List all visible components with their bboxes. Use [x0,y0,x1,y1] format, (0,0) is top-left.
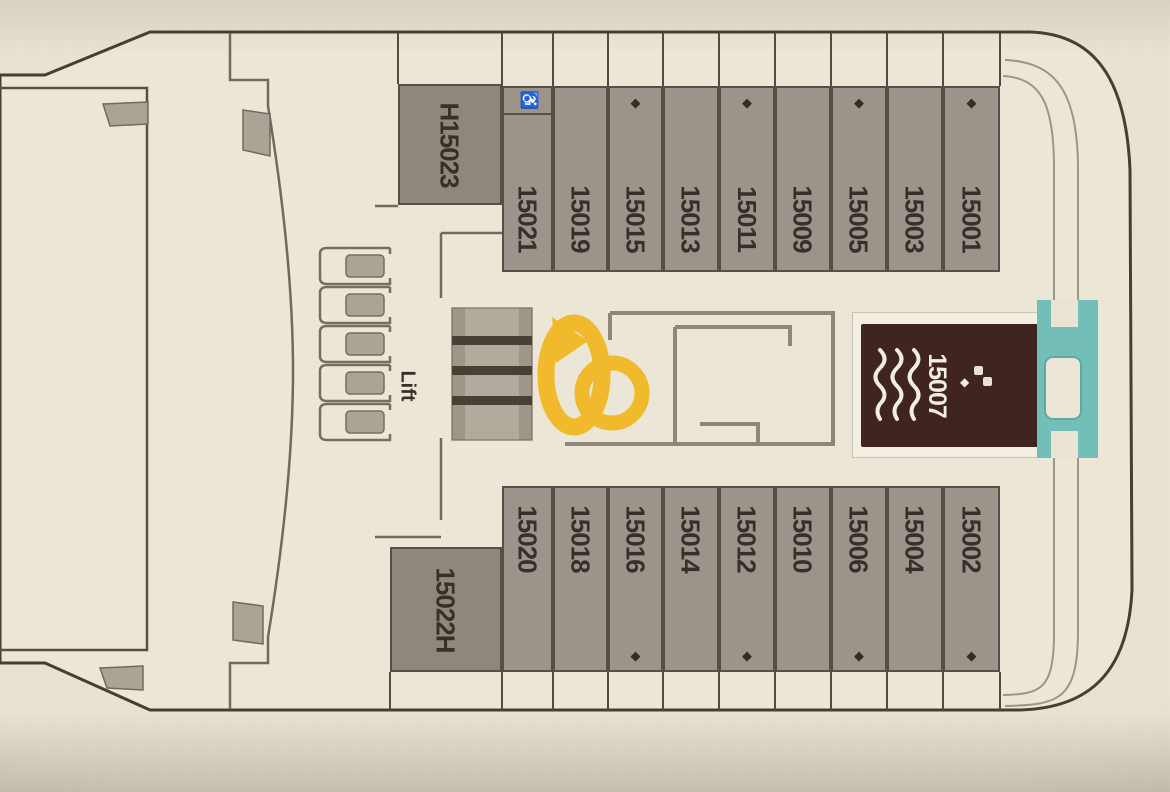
cabin-number: 15004 [902,505,928,572]
cabin-number: 15001 [959,185,985,252]
cabin-15009[interactable]: 15009 [775,86,831,272]
cabin-15004[interactable]: 15004 [887,486,943,672]
cabin-15021[interactable]: ♿ 15021 [502,86,553,272]
cabin-number: 15013 [678,185,704,252]
diamond-icon: ◆ [610,649,661,662]
cabin-15016[interactable]: ◆ 15016 [608,486,663,672]
cabin-number: 15003 [902,185,928,252]
whirlpool-icon [873,346,921,424]
cabin-number: 15009 [790,185,816,252]
diamond-icon: ◆ [610,96,661,109]
cabin-15013[interactable]: 15013 [663,86,719,272]
berth-icon [973,366,993,388]
cabin-number: 15010 [790,505,816,572]
diamond-icon: ◆ [833,649,885,662]
cabin-number: 15021 [515,185,541,252]
platform-step [1051,431,1078,458]
cabin-15010[interactable]: 15010 [775,486,831,672]
cabin-15018[interactable]: 15018 [553,486,608,672]
cabin-H15023[interactable]: H15023 [398,84,502,205]
cabin-number: 15012 [734,505,760,572]
cabin-15014[interactable]: 15014 [663,486,719,672]
cabin-15006[interactable]: ◆ 15006 [831,486,887,672]
cabin-number: 15015 [623,185,649,252]
cabin-number: 15007 [924,353,949,418]
diamond-icon: ◆ [833,96,885,109]
cabin-number: 15018 [568,505,594,572]
whirlpool-tub [1044,356,1082,420]
cabin-number: 15016 [623,505,649,572]
cabin-15011[interactable]: ◆ 15011 [719,86,775,272]
cabin-number: 15002 [959,505,985,572]
cabin-15001[interactable]: ◆ 15001 [943,86,1000,272]
cabin-15012[interactable]: ◆ 15012 [719,486,775,672]
accessible-zone: ♿ [504,88,551,115]
diamond-icon: ◆ [721,649,773,662]
diamond-icon: ◆ [960,376,969,388]
cabin-number: 15022H [433,567,459,652]
watermark-logo-icon [528,303,660,455]
diamond-icon: ◆ [945,96,998,109]
cabin-15007[interactable]: 15007 ◆ [861,324,1038,447]
cabin-number: H15023 [437,102,463,187]
diamond-icon: ◆ [721,96,773,109]
cabin-number: 15020 [515,505,541,572]
cabin-15003[interactable]: 15003 [887,86,943,272]
cabin-number: 15011 [734,186,760,252]
platform-step [1051,300,1078,327]
cabin-15015[interactable]: ◆ 15015 [608,86,663,272]
deck-plan: H15023 ♿ 15021 15019 ◆ 15015 15013 ◆ 150… [0,0,1170,792]
cabin-15002[interactable]: ◆ 15002 [943,486,1000,672]
cabin-number: 15006 [846,505,872,572]
aft-platform [1037,300,1098,458]
cabin-number: 15014 [678,505,704,572]
cabin-number: 15005 [846,185,872,252]
cabin-15022H[interactable]: 15022H [390,547,502,672]
diamond-icon: ◆ [945,649,998,662]
suite-walkway: 15007 ◆ [852,312,1042,458]
lift-label-text: Lift [398,370,418,401]
lift-area-label: Lift [390,338,426,434]
cabin-15019[interactable]: 15019 [553,86,608,272]
cabin-15005[interactable]: ◆ 15005 [831,86,887,272]
cabin-number: 15019 [568,185,594,252]
wheelchair-icon: ♿ [515,90,539,110]
stairs [452,308,532,440]
cabin-15020[interactable]: 15020 [502,486,553,672]
